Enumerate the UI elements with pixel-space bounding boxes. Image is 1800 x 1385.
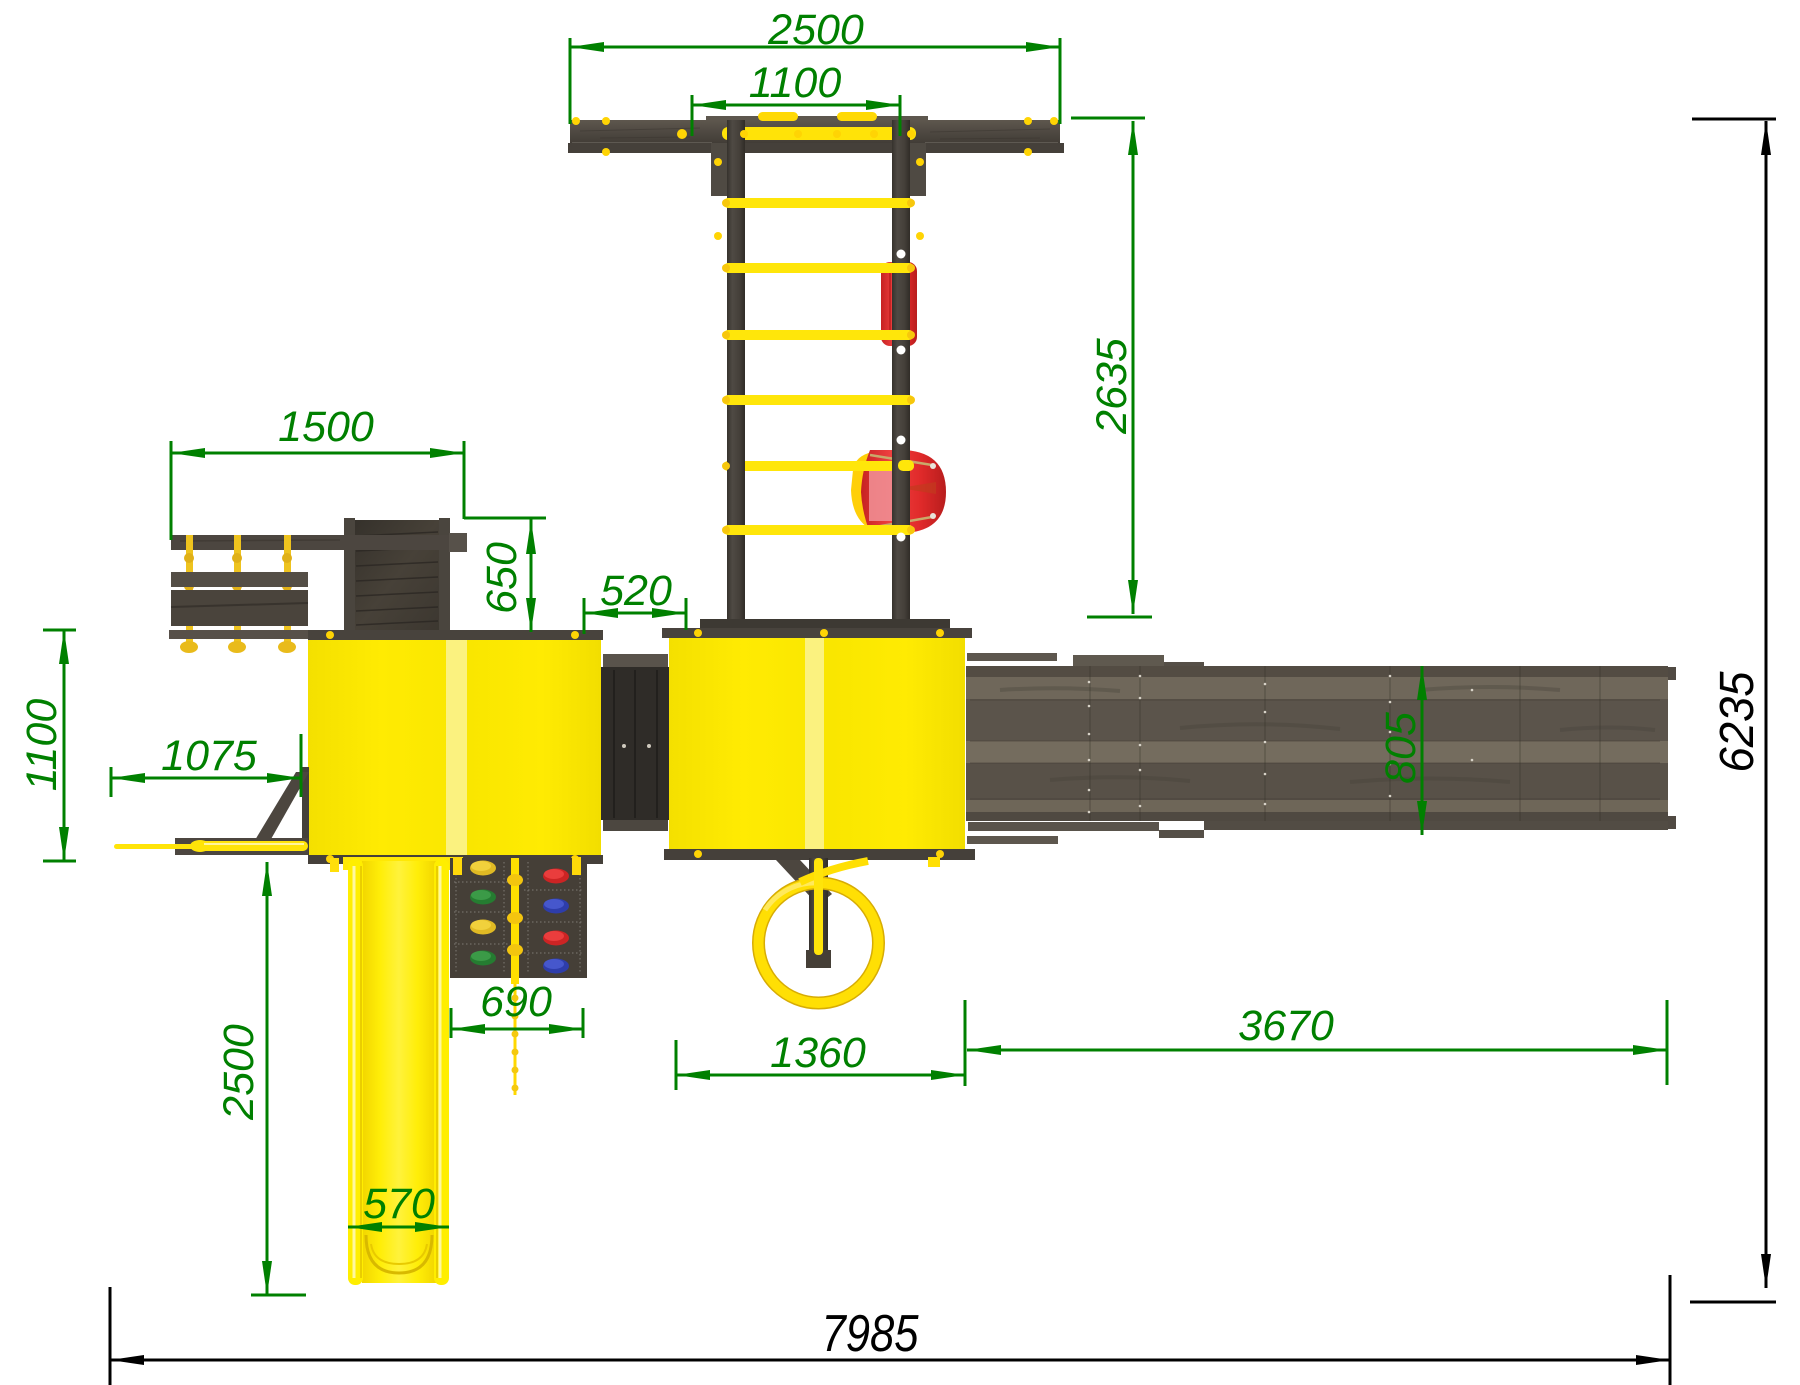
svg-text:1100: 1100 [749,59,842,107]
svg-text:2500: 2500 [215,1024,263,1121]
svg-text:690: 690 [480,978,552,1026]
svg-text:7985: 7985 [822,1305,920,1363]
svg-text:2500: 2500 [767,6,864,54]
svg-text:1075: 1075 [161,732,258,780]
svg-text:1500: 1500 [278,403,374,451]
svg-text:1360: 1360 [770,1029,866,1077]
svg-text:2635: 2635 [1088,337,1136,435]
svg-text:650: 650 [478,542,526,614]
svg-text:6235: 6235 [1711,671,1764,772]
svg-text:520: 520 [600,567,672,615]
svg-text:1100: 1100 [18,699,66,792]
svg-text:570: 570 [363,1180,435,1228]
svg-text:805: 805 [1377,711,1425,784]
svg-text:3670: 3670 [1238,1002,1334,1050]
